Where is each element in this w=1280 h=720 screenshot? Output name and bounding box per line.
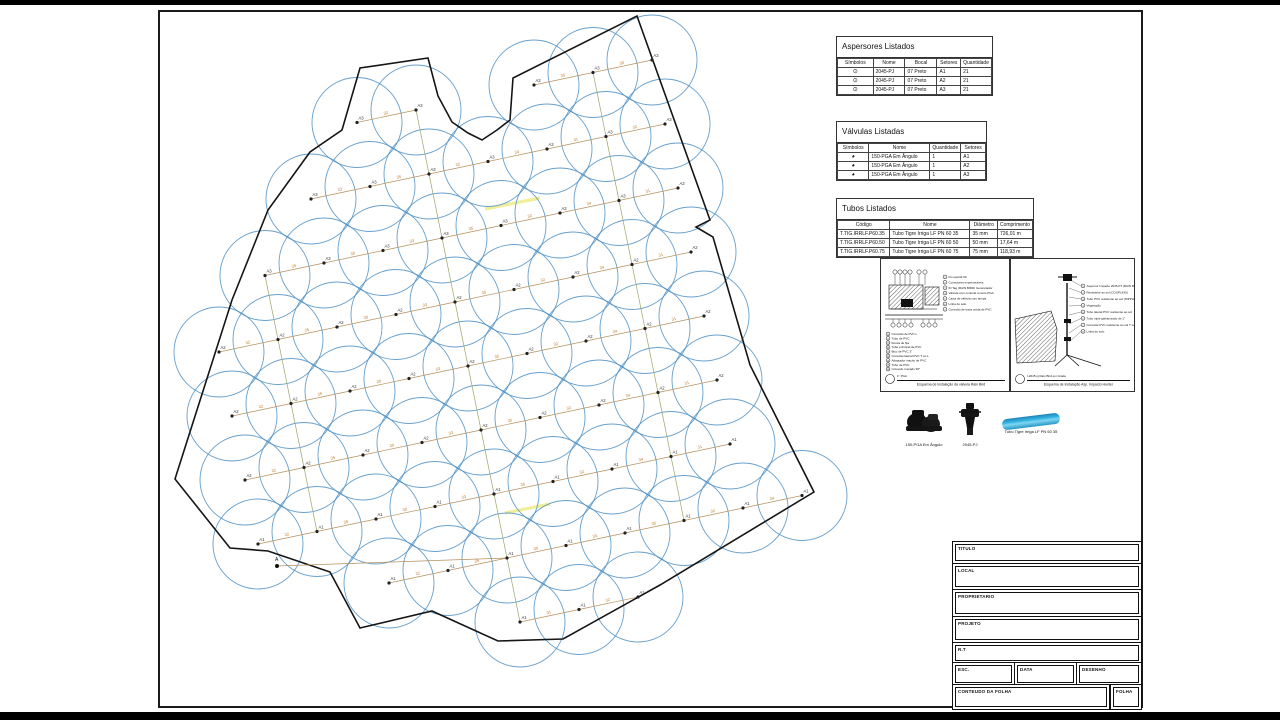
field-label: DATA	[1020, 667, 1033, 672]
svg-text:Tubo de PVC: Tubo de PVC	[892, 363, 911, 367]
titleblock-rt: R.T	[952, 642, 1142, 664]
column-header: Bocal	[905, 59, 937, 68]
table-cell: T.TIG.IRRLF.P60.35	[838, 230, 890, 239]
svg-text:31: 31	[645, 188, 651, 194]
table-cell: 07 Preto	[905, 86, 937, 95]
table-row: T.TIG.IRRLF.P60.75Tubo Tigre Irriga LF P…	[838, 248, 1033, 257]
column-header: Código	[838, 221, 890, 230]
svg-text:A3: A3	[667, 117, 673, 122]
column-header: Nome	[890, 221, 970, 230]
table-cell: 2045-PJ	[873, 86, 905, 95]
field-label: TITULO	[958, 546, 975, 551]
svg-text:A1: A1	[673, 450, 679, 455]
table-row: ⊙2045-PJ07 PretoA321	[838, 86, 992, 95]
svg-text:31: 31	[697, 444, 703, 450]
svg-text:ID Tag (RAIN BIRD) Gerenciador: ID Tag (RAIN BIRD) Gerenciador	[949, 286, 993, 290]
svg-text:A3: A3	[385, 244, 391, 249]
svg-text:34: 34	[612, 328, 618, 334]
svg-text:32: 32	[258, 403, 264, 409]
svg-text:35: 35	[330, 455, 336, 461]
symbol-cell: ◕	[838, 171, 869, 180]
table-row: ◕150-PGA Em Ângulo1A1	[838, 153, 986, 162]
svg-text:30: 30	[376, 378, 382, 384]
valve-install-detail-box: 1Fio espiral 302Conectores impermeáveis3…	[880, 258, 1010, 392]
svg-text:32: 32	[383, 110, 389, 116]
svg-text:A3: A3	[372, 180, 378, 185]
svg-text:30: 30	[389, 442, 395, 448]
svg-text:A2: A2	[575, 270, 581, 275]
table-title: Aspersores Listados	[837, 37, 992, 58]
svg-text:A3: A3	[680, 181, 686, 186]
aspersores-table: Aspersores ListadosSímbolosNomeBocalSeto…	[836, 36, 993, 96]
svg-text:A1: A1	[627, 526, 633, 531]
column-header: Quantidade	[930, 144, 961, 153]
valve-install-schematic: 1Fio espiral 302Conectores impermeáveis3…	[881, 259, 1009, 391]
titleblock-esc: ESC.	[952, 662, 1015, 686]
tubos-table: Tubos ListadosCódigoNomeDiâmetroComprime…	[836, 198, 1034, 258]
field-label: CONTEUDO DA FOLHA	[958, 689, 1011, 694]
table-cell: 1	[930, 171, 961, 180]
column-header: Símbolos	[838, 59, 874, 68]
svg-text:A1: A1	[804, 489, 810, 494]
symbol-cell: ◕	[838, 162, 869, 171]
svg-text:A1: A1	[522, 615, 528, 620]
table-cell: Tubo Tigre Irriga LF PN 60 50	[890, 239, 970, 248]
svg-text:32: 32	[415, 570, 421, 576]
svg-text:Fio espiral 30: Fio espiral 30	[949, 275, 967, 279]
table-row: ⊙2045-PJ07 PretoA221	[838, 77, 992, 86]
svg-text:30: 30	[363, 314, 369, 320]
svg-text:33: 33	[337, 186, 343, 192]
svg-text:Válvula com controle remoto PG: Válvula com controle remoto PGA	[949, 291, 994, 295]
svg-text:32: 32	[540, 277, 546, 283]
svg-text:32: 32	[579, 469, 585, 475]
svg-text:A2: A2	[719, 373, 725, 378]
svg-text:A2: A2	[352, 384, 358, 389]
svg-text:34: 34	[769, 495, 775, 501]
table-cell: 118,93 m	[997, 248, 1032, 257]
symbol-cell: ⊙	[838, 86, 874, 95]
table-cell: T.TIG.IRRLF.P60.75	[838, 248, 890, 257]
svg-text:A1: A1	[378, 512, 384, 517]
svg-text:A1: A1	[437, 500, 443, 505]
cad-sheet-page: { "tables": { "aspersores": { "title": "…	[0, 0, 1280, 720]
svg-text:34: 34	[638, 456, 644, 462]
sprinkler-install-schematic: 1Aspersor Impacto 2045-PJ (RAIN BIRD)2Re…	[1011, 259, 1134, 391]
column-header: Nome	[869, 144, 930, 153]
titleblock-local: LOCAL	[952, 563, 1142, 590]
table-row: ⊙2045-PJ07 PretoA121	[838, 68, 992, 77]
field-label: PROPRIETARIO	[958, 594, 994, 599]
svg-text:Conexão PVC resistente ao sol: Conexão PVC resistente ao sol T ou L (SC…	[1087, 323, 1135, 327]
svg-text:A2: A2	[306, 461, 312, 466]
table-cell: 150-PGA Em Ângulo	[869, 162, 930, 171]
column-header: Comprimento	[997, 221, 1032, 230]
svg-text:30: 30	[533, 545, 539, 551]
svg-text:35: 35	[396, 174, 402, 180]
svg-text:A3: A3	[621, 194, 627, 199]
svg-text:31: 31	[658, 252, 664, 258]
column-header: Nome	[873, 59, 905, 68]
table-cell: A2	[937, 77, 961, 86]
svg-text:A1: A1	[450, 564, 456, 569]
titleblock-conteudo: CONTEUDO DA FOLHA	[952, 684, 1110, 710]
svg-text:Caixa de válvula com tampa: Caixa de válvula com tampa	[949, 297, 987, 301]
svg-text:32: 32	[605, 597, 611, 603]
svg-text:A2: A2	[339, 320, 345, 325]
table-row: ◕150-PGA Em Ângulo1A2	[838, 162, 986, 171]
table-cell: 2045-PJ	[873, 68, 905, 77]
svg-text:Tubo lateral PVC resistente ao: Tubo lateral PVC resistente ao sol	[1087, 310, 1133, 314]
submain-connectors	[265, 73, 684, 623]
svg-text:Conectores impermeáveis: Conectores impermeáveis	[949, 280, 984, 284]
table-title: Válvulas Listadas	[837, 122, 986, 143]
column-header: Setores	[961, 144, 986, 153]
svg-text:32: 32	[455, 161, 461, 167]
titleblock-data: DATA	[1014, 662, 1077, 686]
svg-text:35: 35	[651, 520, 657, 526]
svg-text:A2: A2	[706, 309, 712, 314]
column-header: Diâmetro	[970, 221, 998, 230]
svg-text:33: 33	[435, 366, 441, 372]
svg-text:A1: A1	[745, 501, 751, 506]
svg-text:31: 31	[546, 609, 552, 615]
svg-text:I-2045 pj Rain Bird em Grade: I-2045 pj Rain Bird em Grade	[1027, 374, 1066, 378]
svg-text:33: 33	[409, 238, 415, 244]
table-cell: 75 mm	[970, 248, 998, 257]
table-cell: 726,01 m	[997, 230, 1032, 239]
symbol-cell: ⊙	[838, 68, 874, 77]
field-label: LOCAL	[958, 568, 975, 573]
table-cell: 17,64 m	[997, 239, 1032, 248]
svg-text:A1: A1	[391, 576, 397, 581]
svg-text:Tubo principal de PVC: Tubo principal de PVC	[892, 345, 923, 349]
svg-text:A2: A2	[411, 372, 417, 377]
valve-photo-icon	[904, 406, 944, 436]
svg-text:35: 35	[291, 263, 297, 269]
svg-text:32: 32	[271, 467, 277, 473]
svg-text:A3: A3	[267, 269, 273, 274]
svg-text:A3: A3	[490, 155, 496, 160]
svg-text:A2: A2	[542, 411, 548, 416]
svg-text:35: 35	[494, 353, 500, 359]
svg-text:A2: A2	[529, 347, 535, 352]
svg-text:A2: A2	[247, 473, 253, 478]
table-cell: A3	[937, 86, 961, 95]
table-cell: T.TIG.IRRLF.P60.50	[838, 239, 890, 248]
field-label: R.T	[958, 647, 966, 652]
svg-text:A3: A3	[654, 53, 660, 58]
titleblock-proprietario: PROPRIETARIO	[952, 589, 1142, 617]
svg-text:Aspersor Impacto 2045-PJ (RAIN: Aspersor Impacto 2045-PJ (RAIN BIRD)	[1087, 284, 1135, 288]
table-cell: 150-PGA Em Ângulo	[869, 171, 930, 180]
titleblock-folha: FOLHA	[1110, 684, 1142, 710]
svg-text:A2: A2	[365, 448, 371, 453]
svg-text:30: 30	[402, 506, 408, 512]
table-cell: 35 mm	[970, 230, 998, 239]
svg-text:A2: A2	[293, 397, 299, 402]
sprinkler-heads: A3A3A3A3A3A3A3A3A3A3A3A3A3A3A3A3A3A3A3A3…	[217, 53, 809, 623]
svg-text:A1: A1	[260, 537, 266, 542]
svg-text:33: 33	[422, 302, 428, 308]
table-title: Tubos Listados	[837, 199, 1033, 220]
svg-text:Vegetação: Vegetação	[1087, 304, 1102, 308]
svg-text:35: 35	[304, 327, 310, 333]
legend-label: 2045-PJ	[950, 442, 990, 447]
svg-text:34: 34	[514, 149, 520, 155]
svg-text:33: 33	[448, 430, 454, 436]
svg-text:32: 32	[245, 339, 251, 345]
svg-text:30: 30	[350, 250, 356, 256]
svg-text:A1: A1	[686, 514, 692, 519]
table-cell: 50 mm	[970, 239, 998, 248]
column-header: Setores	[937, 59, 961, 68]
svg-text:A3: A3	[313, 192, 319, 197]
svg-text:A3: A3	[359, 116, 365, 121]
svg-text:32: 32	[284, 531, 290, 537]
svg-text:A1: A1	[319, 525, 325, 530]
legend-label: 150-PGA Em Ângulo	[898, 442, 950, 447]
svg-text:Conexão de PVC L: Conexão de PVC L	[892, 332, 918, 336]
legend-item-valve: 150-PGA Em Ângulo	[898, 406, 950, 447]
svg-text:A3: A3	[536, 78, 542, 83]
svg-text:Esquema de instalação da válvu: Esquema de instalação da válvula Rain Bi…	[917, 383, 986, 387]
table-cell: 1	[930, 153, 961, 162]
table-cell: A1	[961, 153, 986, 162]
table-row: ◕150-PGA Em Ângulo1A3	[838, 171, 986, 180]
legend-item-pipe: Tubo Tigre Irriga LF PN 60 35	[996, 412, 1066, 434]
svg-text:35: 35	[520, 481, 526, 487]
svg-text:A1: A1	[732, 437, 738, 442]
svg-text:32: 32	[527, 213, 533, 219]
svg-text:Bico de PVC 3": Bico de PVC 3"	[892, 350, 913, 354]
table-cell: 21	[961, 68, 992, 77]
svg-text:Cotovelo roscado 90°: Cotovelo roscado 90°	[892, 367, 922, 371]
svg-text:A1: A1	[614, 462, 620, 467]
svg-text:Linha do solo: Linha do solo	[1087, 330, 1105, 334]
titleblock-desenho: DESENHO	[1076, 662, 1142, 686]
table-cell: A1	[937, 68, 961, 77]
titleblock-projeto: PROJETO	[952, 616, 1142, 643]
svg-text:A2: A2	[234, 409, 240, 414]
svg-text:35: 35	[560, 72, 566, 78]
svg-text:1" PGA: 1" PGA	[897, 374, 907, 378]
table-cell: 21	[961, 86, 992, 95]
pipe-photo-icon	[1002, 413, 1061, 431]
svg-text:32: 32	[632, 124, 638, 130]
svg-text:Resistente ao sol (COUPLING): Resistente ao sol (COUPLING)	[1087, 291, 1129, 295]
table-cell: A2	[961, 162, 986, 171]
svg-text:A3: A3	[418, 103, 424, 108]
table-cell: Tubo Tigre Irriga LF PN 60 75	[890, 248, 970, 257]
svg-text:34: 34	[586, 200, 592, 206]
table-cell: 07 Preto	[905, 68, 937, 77]
svg-text:33: 33	[461, 494, 467, 500]
sprinkler-install-detail-box: 1Aspersor Impacto 2045-PJ (RAIN BIRD)2Re…	[1010, 258, 1135, 392]
svg-text:30: 30	[619, 60, 625, 66]
svg-text:A2: A2	[516, 283, 522, 288]
svg-text:Tubo PVC resistente ao sol (NI: Tubo PVC resistente ao sol (NIPPLE)	[1087, 297, 1135, 301]
svg-text:A2: A2	[483, 423, 489, 428]
svg-text:A2: A2	[457, 295, 463, 300]
svg-text:32: 32	[710, 508, 716, 514]
svg-text:32: 32	[553, 341, 559, 347]
legend-item-sprinkler: 2045-PJ	[950, 402, 990, 447]
svg-text:A2: A2	[588, 334, 594, 339]
svg-text:A3: A3	[503, 219, 509, 224]
field-label: DESENHO	[1082, 667, 1106, 672]
svg-text:A2: A2	[634, 258, 640, 263]
svg-text:A: A	[275, 557, 279, 563]
svg-text:A3: A3	[608, 130, 614, 135]
svg-text:Adaptador macho de PVC: Adaptador macho de PVC	[892, 358, 928, 362]
sprinkler-photo-icon	[957, 402, 983, 436]
table-cell: 150-PGA Em Ângulo	[869, 153, 930, 162]
svg-text:A1: A1	[509, 551, 515, 556]
svg-text:Linha do solo: Linha do solo	[949, 302, 967, 306]
svg-text:35: 35	[507, 417, 513, 423]
svg-text:A2: A2	[424, 436, 430, 441]
svg-text:A2: A2	[398, 308, 404, 313]
column-header: Símbolos	[838, 144, 869, 153]
water-source: A	[275, 557, 507, 568]
table-cell: A3	[961, 171, 986, 180]
svg-text:A3: A3	[595, 66, 601, 71]
svg-text:A2: A2	[647, 322, 653, 327]
svg-text:A3: A3	[431, 167, 437, 172]
svg-text:A2: A2	[280, 333, 286, 338]
valvulas-table: Válvulas ListadasSímbolosNomeQuantidadeS…	[836, 121, 987, 181]
svg-text:32: 32	[566, 405, 572, 411]
column-header: Quantidade	[961, 59, 992, 68]
table-cell: 2045-PJ	[873, 77, 905, 86]
valve-schematic-art	[885, 285, 943, 319]
svg-text:A2: A2	[693, 245, 699, 250]
svg-text:A1: A1	[640, 590, 646, 595]
svg-text:A1: A1	[568, 539, 574, 544]
symbol-cell: ⊙	[838, 77, 874, 86]
svg-text:Conexão de trava unida de PVC: Conexão de trava unida de PVC	[949, 307, 993, 311]
svg-text:35: 35	[343, 519, 349, 525]
svg-text:A1: A1	[555, 475, 561, 480]
table-row: T.TIG.IRRLF.P60.35Tubo Tigre Irriga LF P…	[838, 230, 1033, 239]
svg-text:Tubo de PVC: Tubo de PVC	[892, 336, 911, 340]
svg-text:35: 35	[481, 289, 487, 295]
lateral-pipes: 3235303335323431323530333532343132353033…	[219, 60, 802, 622]
svg-text:A2: A2	[221, 345, 227, 350]
table-cell: 21	[961, 77, 992, 86]
svg-text:35: 35	[317, 391, 323, 397]
property-boundary	[175, 16, 814, 641]
svg-text:35: 35	[468, 225, 474, 231]
titleblock-titulo: TITULO	[952, 541, 1142, 564]
field-label: FOLHA	[1116, 689, 1133, 694]
table-cell: 07 Preto	[905, 77, 937, 86]
table-cell: Tubo Tigre Irriga LF PN 60 35	[890, 230, 970, 239]
table-row: T.TIG.IRRLF.P60.50Tubo Tigre Irriga LF P…	[838, 239, 1033, 248]
svg-text:A2: A2	[660, 386, 666, 391]
svg-text:Rosca de fita: Rosca de fita	[892, 341, 910, 345]
field-label: ESC.	[958, 667, 969, 672]
svg-text:A2: A2	[601, 398, 607, 403]
svg-text:34: 34	[599, 264, 605, 270]
svg-text:Conexão lateral PVC T ou L: Conexão lateral PVC T ou L	[892, 354, 930, 358]
svg-text:A3: A3	[444, 231, 450, 236]
svg-text:33: 33	[592, 533, 598, 539]
svg-text:A1: A1	[581, 603, 587, 608]
svg-text:Esquema de instalação Asp. Imp: Esquema de instalação Asp. Impacto Hunte…	[1044, 383, 1114, 387]
field-label: PROJETO	[958, 621, 981, 626]
svg-text:31: 31	[671, 316, 677, 322]
svg-text:31: 31	[684, 380, 690, 386]
svg-text:34: 34	[625, 392, 631, 398]
table-cell: 1	[930, 162, 961, 171]
svg-text:A3: A3	[562, 206, 568, 211]
svg-text:A2: A2	[470, 359, 476, 364]
svg-text:Tubo niple galvanizado de 1": Tubo niple galvanizado de 1"	[1087, 317, 1125, 321]
symbol-cell: ◕	[838, 153, 869, 162]
svg-text:A3: A3	[549, 142, 555, 147]
svg-text:31: 31	[573, 136, 579, 142]
svg-text:A1: A1	[496, 487, 502, 492]
svg-text:A3: A3	[326, 256, 332, 261]
